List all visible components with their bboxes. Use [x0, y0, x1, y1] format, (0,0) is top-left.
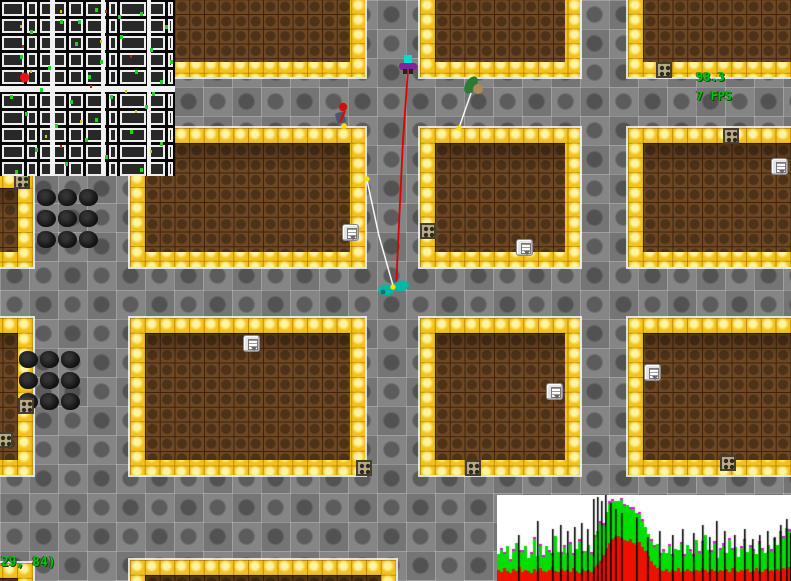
minimap-block [168, 19, 173, 33]
minimap-agent-dot [40, 88, 43, 92]
minimap-item-speck [80, 120, 82, 123]
waypoint-dot [364, 176, 369, 181]
building [420, 0, 580, 77]
minimap-agent-dot [105, 155, 108, 159]
minimap-block [149, 111, 165, 125]
minimap-enemy-speck [105, 10, 107, 13]
minimap-agent-dot [65, 162, 68, 166]
minimap-agent-dot [160, 80, 163, 84]
minimap-enemy-speck [130, 55, 132, 58]
minimap-agent-dot [160, 142, 163, 146]
trapdoor-icon[interactable] [720, 455, 736, 471]
minimap-block [27, 2, 37, 16]
minimap-block [27, 111, 37, 125]
minimap-player-dot [20, 73, 29, 82]
agent-leader[interactable] [399, 55, 417, 74]
scroll-icon[interactable] [243, 335, 260, 352]
trapdoor-icon[interactable] [18, 398, 34, 414]
trapdoor-icon[interactable] [465, 460, 481, 476]
minimap-block [149, 94, 165, 108]
rock-pile-icon [79, 210, 98, 227]
minimap-agent-dot [10, 95, 13, 99]
minimap-block [109, 128, 117, 142]
minimap-block [2, 162, 24, 176]
coordinates-readout: (29, 84) [0, 556, 56, 569]
minimap-enemy-speck [60, 145, 62, 148]
minimap-block [27, 94, 37, 108]
trapdoor-icon[interactable] [656, 62, 672, 78]
building [130, 560, 396, 581]
rock-pile-icon [61, 372, 80, 389]
minimap-block [2, 2, 24, 16]
minimap-agent-dot [95, 8, 98, 12]
scroll-icon[interactable] [342, 224, 359, 241]
minimap-block [109, 145, 117, 159]
minimap-item-speck [45, 135, 47, 138]
minimap-block [168, 162, 173, 176]
minimap-block [120, 36, 146, 50]
move-path-white-a [459, 93, 471, 128]
minimap-block [120, 94, 146, 108]
minimap-block [27, 128, 37, 142]
minimap-item-speck [135, 110, 137, 113]
trapdoor-icon[interactable] [723, 128, 739, 144]
scroll-icon[interactable] [771, 158, 788, 175]
minimap-agent-dot [100, 60, 103, 64]
minimap-agent-dot [15, 170, 18, 174]
minimap-enemy-speck [90, 85, 92, 88]
minimap-block [120, 128, 146, 142]
minimap-block [168, 70, 173, 84]
minimap-enemy-speck [22, 45, 24, 48]
minimap-agent-dot [55, 124, 58, 128]
agent-downed[interactable] [378, 279, 410, 296]
rock-pile-icon [19, 351, 38, 368]
minimap-block [120, 145, 146, 159]
minimap-agent-dot [95, 118, 98, 122]
minimap-block [109, 2, 117, 16]
minimap-block [2, 36, 24, 50]
minimap-agent-dot [150, 48, 153, 52]
minimap-block [120, 53, 146, 67]
building [628, 0, 791, 77]
scroll-icon[interactable] [516, 239, 533, 256]
minimap-block [2, 128, 24, 142]
minimap-block [109, 162, 117, 176]
agent-scout[interactable] [461, 74, 483, 96]
minimap-block [2, 111, 24, 125]
minimap-agent-dot [25, 112, 28, 116]
minimap-block [27, 53, 37, 67]
minimap-block [109, 19, 117, 33]
rock-pile-icon [37, 189, 56, 206]
minimap-agent-dot [110, 95, 113, 99]
move-path-white-b [367, 180, 394, 289]
minimap-block [168, 36, 173, 50]
rock-pile-icon [37, 210, 56, 227]
rock-pile-icon [40, 351, 59, 368]
minimap-agent-dot [130, 130, 133, 134]
score-value: 98.3 [696, 71, 725, 84]
minimap-block [109, 111, 117, 125]
minimap-agent-dot [88, 75, 91, 79]
minimap-agent-dot [30, 30, 33, 34]
rock-pile-icon [19, 372, 38, 389]
game-viewport[interactable]: 98.3 7 FPS (29, 84) [0, 0, 791, 581]
minimap-block [69, 53, 83, 67]
minimap-block [109, 53, 117, 67]
minimap-agent-dot [140, 12, 143, 16]
trapdoor-icon[interactable] [420, 223, 436, 239]
minimap-agent-dot [152, 92, 155, 96]
minimap-block [2, 145, 24, 159]
minimap-block [149, 19, 165, 33]
minimap-agent-dot [120, 35, 123, 39]
minimap-agent-dot [70, 100, 73, 104]
minimap-block [149, 128, 165, 142]
target-path-red [396, 70, 408, 291]
minimap-block [149, 53, 165, 67]
minimap-block [69, 162, 83, 176]
rock-pile-icon [40, 393, 59, 410]
minimap-item-speck [150, 150, 152, 153]
rock-pile-icon [61, 393, 80, 410]
minimap-block [27, 162, 37, 176]
minimap-item-speck [125, 90, 127, 93]
rock-pile-icon [58, 231, 77, 248]
minimap-block [168, 111, 173, 125]
building [628, 128, 791, 267]
rock-pile-icon [79, 231, 98, 248]
minimap-block [120, 19, 146, 33]
minimap-block [69, 70, 83, 84]
minimap-item-speck [60, 10, 62, 13]
minimap-agent-dot [48, 66, 51, 70]
minimap-block [69, 145, 83, 159]
minimap-agent-dot [165, 25, 168, 29]
minimap-agent-dot [140, 168, 143, 172]
rock-pile-icon [58, 189, 77, 206]
rock-pile-icon [79, 189, 98, 206]
building [628, 318, 791, 475]
rock-pile-icon [40, 372, 59, 389]
minimap-block [120, 111, 146, 125]
minimap-block [2, 94, 24, 108]
minimap-block [168, 145, 173, 159]
minimap-agent-dot [135, 70, 138, 74]
performance-graph [497, 495, 791, 581]
minimap-street [0, 86, 175, 92]
minimap-block [149, 162, 165, 176]
minimap-block [120, 70, 146, 84]
minimap-agent-dot [35, 148, 38, 152]
minimap-item-speck [20, 25, 22, 28]
minimap-agent-dot [118, 15, 121, 19]
trapdoor-icon[interactable] [0, 432, 13, 448]
trapdoor-icon[interactable] [356, 460, 372, 476]
minimap-agent-dot [145, 105, 148, 109]
scroll-icon[interactable] [546, 383, 563, 400]
minimap-agent-dot [20, 55, 23, 59]
minimap-block [109, 36, 117, 50]
minimap-agent-dot [78, 20, 81, 24]
building [420, 128, 580, 267]
minimap-block [168, 94, 173, 108]
fps-counter: 7 FPS [696, 90, 732, 103]
minimap-block [149, 2, 165, 16]
rock-pile-icon [37, 231, 56, 248]
minimap-block [168, 128, 173, 142]
minimap-item-speck [100, 40, 102, 43]
minimap-block [109, 70, 117, 84]
minimap-block [69, 2, 83, 16]
rock-pile-icon [58, 210, 77, 227]
minimap-agent-dot [60, 20, 63, 24]
minimap[interactable] [0, 0, 175, 176]
minimap-block [168, 2, 173, 16]
minimap-agent-dot [85, 138, 88, 142]
minimap-block [27, 36, 37, 50]
minimap-block [69, 128, 83, 142]
agent-fighter[interactable] [335, 103, 348, 129]
minimap-item-speck [30, 70, 32, 73]
rock-pile-icon [61, 351, 80, 368]
scroll-icon[interactable] [644, 364, 661, 381]
minimap-agent-dot [75, 42, 78, 46]
minimap-agent-dot [170, 60, 173, 64]
